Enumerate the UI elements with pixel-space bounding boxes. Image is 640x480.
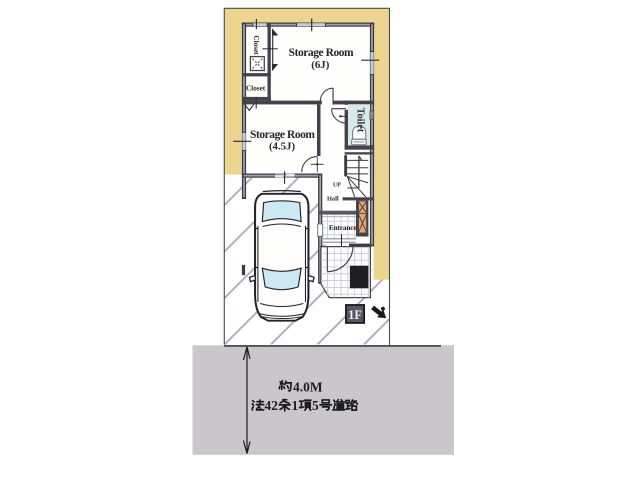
- svg-text:5: 5: [312, 398, 319, 413]
- svg-text:1: 1: [292, 398, 299, 413]
- svg-text:Storage Room: Storage Room: [250, 129, 315, 141]
- svg-text:1F: 1F: [348, 308, 362, 322]
- svg-text:42: 42: [265, 398, 279, 413]
- svg-text:4.0M: 4.0M: [293, 379, 323, 394]
- svg-text:Closet: Closet: [252, 35, 260, 55]
- svg-text:(4.5J): (4.5J): [269, 141, 295, 153]
- svg-text:Closet: Closet: [246, 84, 266, 92]
- svg-text:Entrance: Entrance: [329, 224, 357, 232]
- svg-text:UP: UP: [333, 183, 341, 189]
- svg-text:(6J): (6J): [311, 59, 329, 71]
- svg-text:Toilet: Toilet: [355, 108, 366, 133]
- svg-text:Storage Room: Storage Room: [289, 47, 354, 59]
- svg-text:Hall: Hall: [327, 196, 339, 203]
